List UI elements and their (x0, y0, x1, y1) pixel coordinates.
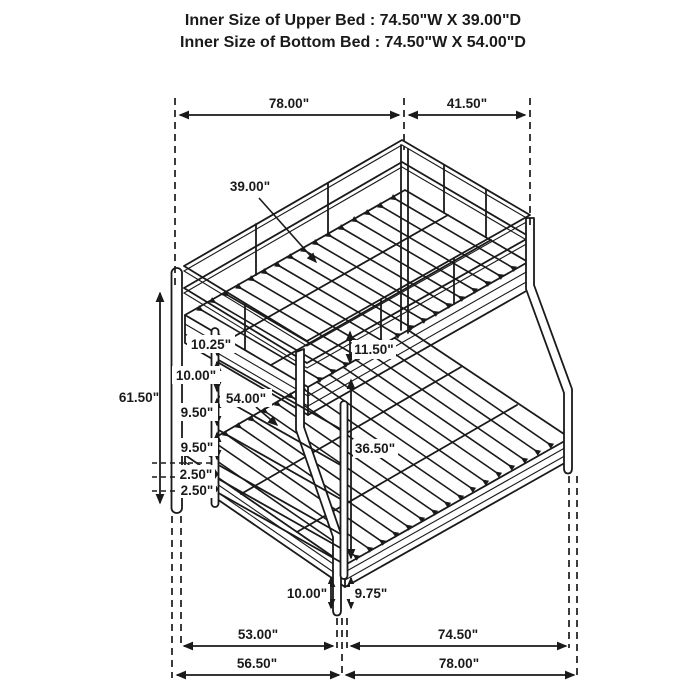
dim-ladder-gap-2-label: 10.00" (176, 368, 216, 383)
front-leg (296, 349, 341, 616)
dim-lower-bed-depth-label: 54.00" (226, 391, 266, 406)
dim-top-width-label: 78.00" (269, 96, 309, 111)
diagram-svg: Inner Size of Upper Bed : 74.50"W X 39.0… (0, 0, 700, 700)
ladder-right-rail (341, 401, 348, 579)
dim-ladder-gap-1-label: 10.25" (191, 337, 231, 352)
dim-bottom-left-outer-label: 56.50" (237, 656, 277, 671)
right-leg (526, 218, 572, 474)
dim-top-side-label: 41.50" (447, 96, 487, 111)
dim-under-clearance-label: 36.50" (355, 441, 395, 456)
dim-guard-rail-height-label: 11.50" (354, 342, 393, 357)
bunk-bed-dimension-diagram: Inner Size of Upper Bed : 74.50"W X 39.0… (0, 0, 700, 700)
dim-ladder-gap-5-label: 2.50" (180, 467, 213, 482)
dim-ladder-gap-4-label: 9.50" (181, 440, 214, 455)
dim-ladder-gap-3-label: 9.50" (181, 405, 214, 420)
dim-overall-height-label: 61.50" (119, 390, 159, 405)
header-bottom-bed-size: Inner Size of Bottom Bed : 74.50"W X 54.… (180, 34, 526, 51)
bunk-bed-drawing (172, 140, 573, 616)
dim-bottom-left-inner-label: 53.00" (238, 627, 278, 642)
dim-ladder-gap-6-label: 2.50" (181, 483, 214, 498)
dim-bottom-right-inner-label: 74.50" (438, 627, 478, 642)
dim-lower-frame-label: 9.75" (355, 586, 388, 601)
dim-upper-bed-depth-label: 39.00" (230, 179, 270, 194)
leader-upper-bed-depth (259, 198, 316, 262)
header-upper-bed-size: Inner Size of Upper Bed : 74.50"W X 39.0… (185, 12, 521, 29)
dim-bottom-right-outer-label: 78.00" (439, 656, 479, 671)
dim-front-leg-label: 10.00" (287, 586, 327, 601)
